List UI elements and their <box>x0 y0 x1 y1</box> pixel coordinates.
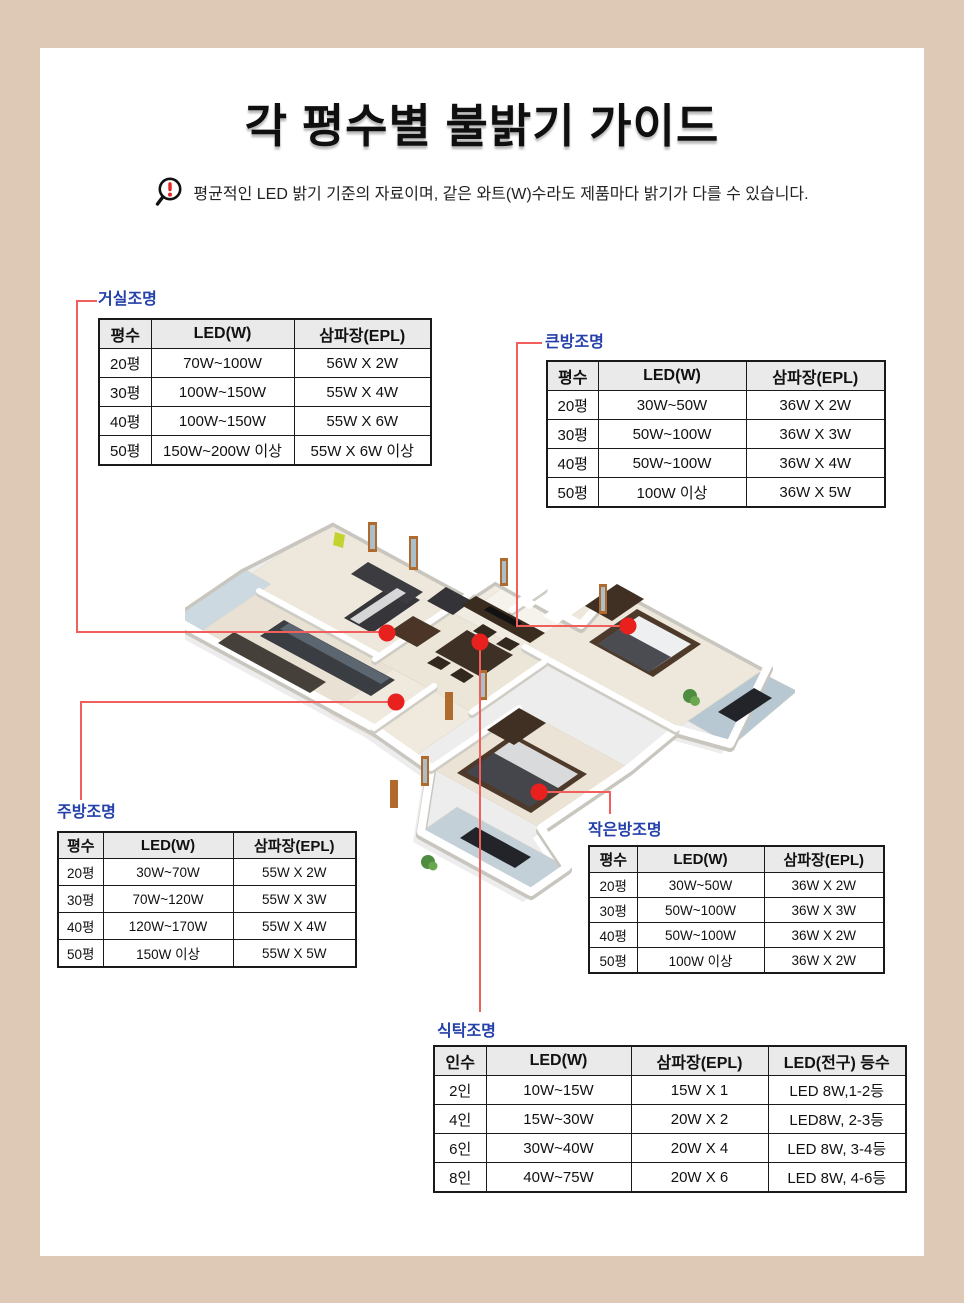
table-row: 20평 30W~70W 55W X 2W <box>58 859 356 886</box>
cell: LED8W, 2-3등 <box>768 1105 906 1134</box>
cell: 30W~70W <box>103 859 233 886</box>
cell: 15W X 1 <box>631 1076 768 1105</box>
dining-table-label: 식탁조명 <box>437 1017 496 1041</box>
cell: 20W X 6 <box>631 1163 768 1193</box>
header-cell: 평수 <box>99 319 151 349</box>
table-row: 50평 150W~200W 이상 55W X 6W 이상 <box>99 436 431 466</box>
living-table-label: 거실조명 <box>98 285 157 309</box>
cell: 15W~30W <box>486 1105 631 1134</box>
header-row: 평수 LED(W) 삼파장(EPL) <box>589 846 884 873</box>
header-cell: LED(W) <box>598 361 746 391</box>
table-row: 50평 150W 이상 55W X 5W <box>58 940 356 968</box>
header-cell: 인수 <box>434 1046 486 1076</box>
cell: 55W X 2W <box>233 859 356 886</box>
cell: 50W~100W <box>598 449 746 478</box>
table-row: 6인 30W~40W 20W X 4 LED 8W, 3-4등 <box>434 1134 906 1163</box>
header-cell: 삼파장(EPL) <box>294 319 431 349</box>
header-cell: 삼파장(EPL) <box>631 1046 768 1076</box>
small-room-table: 평수 LED(W) 삼파장(EPL) 20평 30W~50W 36W X 2W … <box>588 845 885 974</box>
small-room-table-label: 작은방조명 <box>588 816 662 840</box>
cell: 40W~75W <box>486 1163 631 1193</box>
cell: 6인 <box>434 1134 486 1163</box>
cell: 36W X 4W <box>746 449 885 478</box>
cell: 40평 <box>99 407 151 436</box>
cell: 36W X 2W <box>746 391 885 420</box>
table-row: 30평 100W~150W 55W X 4W <box>99 378 431 407</box>
cell: 8인 <box>434 1163 486 1193</box>
cell: 2인 <box>434 1076 486 1105</box>
cell: 50W~100W <box>598 420 746 449</box>
cell: 30W~40W <box>486 1134 631 1163</box>
cell: 50W~100W <box>637 923 764 948</box>
header-row: 평수 LED(W) 삼파장(EPL) <box>99 319 431 349</box>
cell: 10W~15W <box>486 1076 631 1105</box>
big-room-table: 평수 LED(W) 삼파장(EPL) 20평 30W~50W 36W X 2W … <box>546 360 886 508</box>
cell: LED 8W, 4-6등 <box>768 1163 906 1193</box>
cell: 50W~100W <box>637 898 764 923</box>
table-row: 30평 70W~120W 55W X 3W <box>58 886 356 913</box>
cell: 30평 <box>58 886 103 913</box>
magnifier-exclamation-icon <box>155 176 184 208</box>
cell: 20평 <box>547 391 598 420</box>
cell: LED 8W,1-2등 <box>768 1076 906 1105</box>
cell: 50평 <box>58 940 103 968</box>
dining-table: 인수 LED(W) 삼파장(EPL) LED(전구) 등수 2인 10W~15W… <box>433 1045 907 1193</box>
cell: 4인 <box>434 1105 486 1134</box>
table-row: 20평 30W~50W 36W X 2W <box>589 873 884 898</box>
notice-row: 평균적인 LED 밝기 기준의 자료이며, 같은 와트(W)수라도 제품마다 밝… <box>40 176 924 208</box>
header-cell: LED(W) <box>151 319 294 349</box>
cell: 36W X 3W <box>764 898 884 923</box>
table-row: 30평 50W~100W 36W X 3W <box>547 420 885 449</box>
cell: 150W~200W 이상 <box>151 436 294 466</box>
cell: 30W~50W <box>637 873 764 898</box>
table-row: 20평 30W~50W 36W X 2W <box>547 391 885 420</box>
kitchen-table-label: 주방조명 <box>57 798 116 822</box>
cell: 100W~150W <box>151 378 294 407</box>
cell: 50평 <box>589 948 637 974</box>
cell: 150W 이상 <box>103 940 233 968</box>
cell: 30평 <box>547 420 598 449</box>
header-cell: 평수 <box>589 846 637 873</box>
table-row: 40평 120W~170W 55W X 4W <box>58 913 356 940</box>
cell: 20W X 2 <box>631 1105 768 1134</box>
cell: 100W 이상 <box>637 948 764 974</box>
cell: 55W X 5W <box>233 940 356 968</box>
cell: 36W X 3W <box>746 420 885 449</box>
table-row: 20평 70W~100W 56W X 2W <box>99 349 431 378</box>
table-row: 40평 50W~100W 36W X 4W <box>547 449 885 478</box>
cell: 20W X 4 <box>631 1134 768 1163</box>
header-cell: 평수 <box>58 832 103 859</box>
cell: 36W X 2W <box>764 873 884 898</box>
living-table: 평수 LED(W) 삼파장(EPL) 20평 70W~100W 56W X 2W… <box>98 318 432 466</box>
header-cell: LED(전구) 등수 <box>768 1046 906 1076</box>
cell: 55W X 6W 이상 <box>294 436 431 466</box>
cell: 120W~170W <box>103 913 233 940</box>
table-row: 4인 15W~30W 20W X 2 LED8W, 2-3등 <box>434 1105 906 1134</box>
cell: 20평 <box>58 859 103 886</box>
cell: 36W X 2W <box>764 923 884 948</box>
cell: 56W X 2W <box>294 349 431 378</box>
cell: LED 8W, 3-4등 <box>768 1134 906 1163</box>
cell: 100W~150W <box>151 407 294 436</box>
table-row: 2인 10W~15W 15W X 1 LED 8W,1-2등 <box>434 1076 906 1105</box>
table-row: 40평 100W~150W 55W X 6W <box>99 407 431 436</box>
cell: 30평 <box>99 378 151 407</box>
cell: 50평 <box>547 478 598 508</box>
cell: 100W 이상 <box>598 478 746 508</box>
cell: 55W X 6W <box>294 407 431 436</box>
cell: 40평 <box>58 913 103 940</box>
cell: 50평 <box>99 436 151 466</box>
cell: 55W X 4W <box>294 378 431 407</box>
cell: 55W X 4W <box>233 913 356 940</box>
page-title: 각 평수별 불밝기 가이드 <box>40 90 924 156</box>
table-row: 50평 100W 이상 36W X 5W <box>547 478 885 508</box>
header-row: 인수 LED(W) 삼파장(EPL) LED(전구) 등수 <box>434 1046 906 1076</box>
table-row: 30평 50W~100W 36W X 3W <box>589 898 884 923</box>
table-row: 50평 100W 이상 36W X 2W <box>589 948 884 974</box>
infographic-page: { "page": { "title": "각 평수별 불밝기 가이드", "n… <box>0 0 964 1303</box>
header-cell: 평수 <box>547 361 598 391</box>
cell: 30W~50W <box>598 391 746 420</box>
table-row: 8인 40W~75W 20W X 6 LED 8W, 4-6등 <box>434 1163 906 1193</box>
header-cell: LED(W) <box>486 1046 631 1076</box>
cell: 30평 <box>589 898 637 923</box>
cell: 70W~100W <box>151 349 294 378</box>
notice-text: 평균적인 LED 밝기 기준의 자료이며, 같은 와트(W)수라도 제품마다 밝… <box>193 180 808 204</box>
header-cell: 삼파장(EPL) <box>746 361 885 391</box>
cell: 36W X 2W <box>764 948 884 974</box>
header-cell: LED(W) <box>637 846 764 873</box>
table-row: 40평 50W~100W 36W X 2W <box>589 923 884 948</box>
big-room-table-label: 큰방조명 <box>545 328 604 352</box>
header-cell: 삼파장(EPL) <box>233 832 356 859</box>
cell: 55W X 3W <box>233 886 356 913</box>
cell: 36W X 5W <box>746 478 885 508</box>
header-row: 평수 LED(W) 삼파장(EPL) <box>58 832 356 859</box>
header-row: 평수 LED(W) 삼파장(EPL) <box>547 361 885 391</box>
kitchen-table: 평수 LED(W) 삼파장(EPL) 20평 30W~70W 55W X 2W … <box>57 831 357 968</box>
header-cell: 삼파장(EPL) <box>764 846 884 873</box>
cell: 20평 <box>589 873 637 898</box>
cell: 70W~120W <box>103 886 233 913</box>
cell: 40평 <box>547 449 598 478</box>
header-cell: LED(W) <box>103 832 233 859</box>
cell: 20평 <box>99 349 151 378</box>
cell: 40평 <box>589 923 637 948</box>
